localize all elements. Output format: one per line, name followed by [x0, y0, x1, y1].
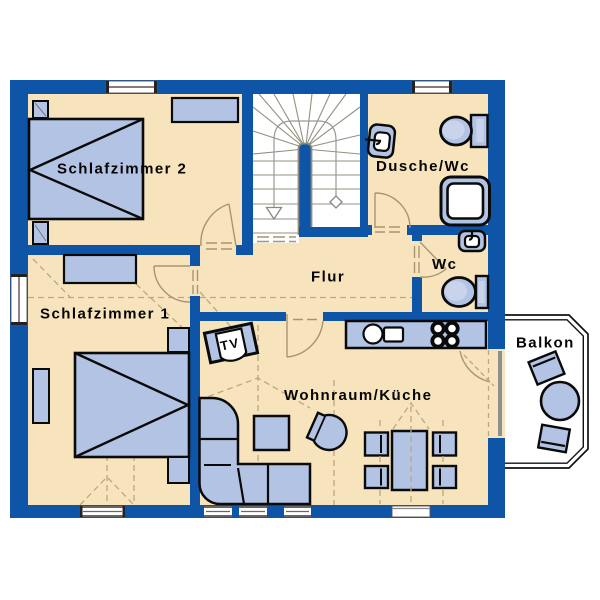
svg-text:Schlafzimmer 1: Schlafzimmer 1 [40, 306, 170, 323]
svg-text:Flur: Flur [311, 269, 345, 286]
svg-text:Dusche/Wc: Dusche/Wc [376, 158, 470, 175]
svg-text:Wc: Wc [432, 256, 457, 273]
svg-text:Balkon: Balkon [516, 335, 575, 352]
svg-text:Wohnraum/Küche: Wohnraum/Küche [284, 387, 432, 404]
svg-text:Schlafzimmer 2: Schlafzimmer 2 [57, 161, 187, 178]
